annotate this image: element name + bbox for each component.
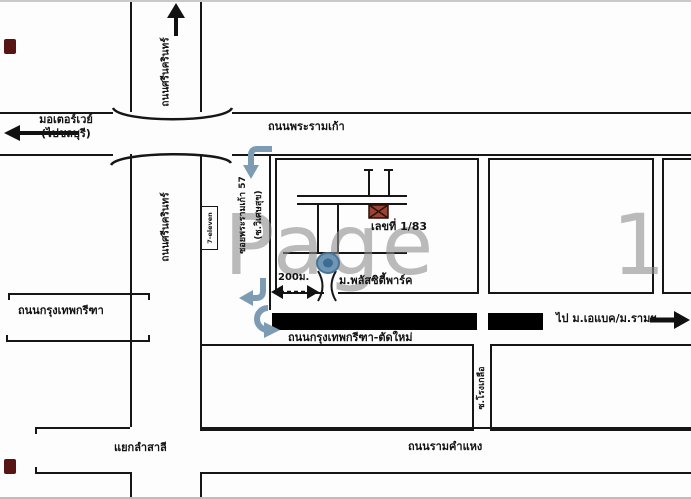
- srinakarin-road-label-mid: ถนนศรีนครินทร์: [159, 192, 174, 261]
- motorway-label-line1: มอเตอร์เวย์: [30, 114, 102, 126]
- krungthep-kreetha-new-road-label: ถนนกรุงเทพกรีฑา-ตัดใหม่: [288, 332, 413, 344]
- route-uturn-arrow-icon: [257, 308, 280, 338]
- route-turn-down-arrow-icon: [243, 149, 272, 179]
- intersection-arc: [113, 108, 232, 119]
- soi-bottom-label: ซ.โรงเกลือ: [474, 366, 488, 409]
- srinakarin-road-label-top: ถนนศรีนครินทร์: [159, 37, 174, 106]
- house-icon: [369, 205, 388, 218]
- soi-rama9-57-label: ซอยพระรามเก้า 57: [235, 176, 249, 253]
- intersection-arc: [111, 154, 231, 165]
- shop-landmark-box: 7-eleven: [201, 206, 218, 250]
- distance-label: 200ม.: [278, 272, 309, 283]
- entrance-bracket: [318, 271, 323, 301]
- map-symbols-layer: [0, 2, 691, 499]
- village-name-label: ม.พลัสซิตี้พาร์ค: [339, 275, 412, 287]
- house-number-label: เลขที่ 1/83: [371, 221, 427, 233]
- lam-sali-junction-label: แยกลำสาลี: [114, 442, 167, 454]
- rama9-road-label: ถนนพระรามเก้า: [268, 121, 345, 133]
- scan-mark: [4, 459, 16, 474]
- village-gate-marker-icon: [317, 253, 339, 273]
- soi-rama9-57-sublabel: (ซ.วิเศษสุข): [251, 190, 265, 239]
- scan-mark: [4, 39, 16, 54]
- entrance-bracket: [332, 271, 337, 301]
- distance-double-arrow-icon: [271, 285, 319, 299]
- krungthep-kreetha-road-label: ถนนกรุงเทพกรีฑา: [18, 305, 104, 317]
- north-arrow-icon: [167, 3, 185, 36]
- route-turn-left-arrow-icon: [239, 278, 263, 306]
- hand-drawn-direction-map: Page 1 7-eleven มอเตอร์เวย์ (ไปชลบุรี) ถ…: [0, 0, 691, 499]
- shop-label: 7-eleven: [206, 212, 214, 244]
- to-abac-label: ไป ม.เอแบค/ม.รามฯ: [556, 313, 657, 325]
- ramkhamhaeng-road-label: ถนนรามคำแหง: [408, 441, 482, 453]
- motorway-label-line2: (ไปชลบุรี): [30, 128, 102, 140]
